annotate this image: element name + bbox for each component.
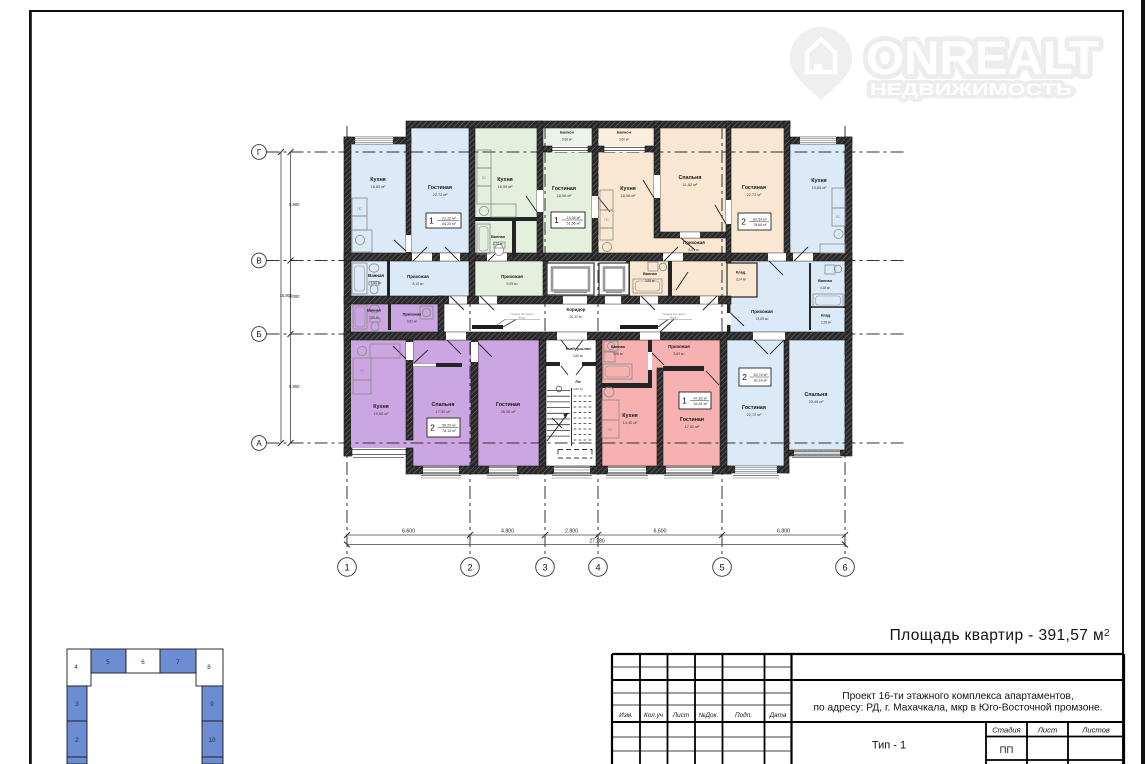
svg-text:13,69 м²: 13,69 м²	[756, 317, 770, 321]
svg-text:Л/к: Л/к	[575, 380, 581, 384]
svg-text:78,15 м²: 78,15 м²	[442, 429, 456, 433]
svg-text:7: 7	[176, 659, 180, 666]
svg-text:по адресу: РД, г. Махачкала, м: по адресу: РД, г. Махачкала, мкр в Юго-В…	[813, 703, 1102, 714]
svg-text:54,25 м²: 54,25 м²	[442, 222, 456, 226]
svg-text:18,83 м²: 18,83 м²	[371, 184, 386, 189]
svg-text:Б: Б	[256, 330, 261, 339]
svg-text:Г: Г	[257, 148, 262, 157]
svg-text:Прихожая: Прихожая	[501, 274, 523, 279]
svg-text:Кухня: Кухня	[373, 404, 388, 410]
svg-text:9,55 м²: 9,55 м²	[506, 282, 518, 286]
svg-text:8,01 м²: 8,01 м²	[688, 248, 700, 252]
svg-text:ПС: ПС	[608, 428, 613, 432]
svg-text:Кухня: Кухня	[370, 177, 385, 183]
svg-text:Листов: Листов	[1081, 726, 1110, 735]
svg-text:60,54 м²: 60,54 м²	[753, 217, 767, 221]
svg-text:Тип - 1: Тип - 1	[872, 740, 906, 752]
svg-text:83,16 м²: 83,16 м²	[754, 379, 768, 383]
svg-text:Подп.: Подп.	[735, 711, 752, 719]
svg-text:1: 1	[344, 562, 349, 572]
svg-text:Гостиная: Гостиная	[742, 405, 766, 411]
svg-text:В: В	[256, 256, 261, 265]
svg-text:26,32 м²: 26,32 м²	[570, 315, 584, 319]
svg-text:5.900: 5.900	[289, 202, 300, 207]
svg-text:Гостиная: Гостиная	[552, 186, 576, 192]
svg-text:3,66 м²: 3,66 м²	[369, 316, 379, 320]
svg-text:6.600: 6.600	[402, 529, 415, 535]
svg-text:2.800: 2.800	[565, 529, 578, 535]
svg-text:Кухня: Кухня	[620, 186, 635, 192]
svg-text:19,65 м²: 19,65 м²	[374, 411, 389, 416]
svg-text:2: 2	[742, 372, 747, 382]
svg-text:Лист: Лист	[1037, 726, 1058, 735]
svg-text:Изм.: Изм.	[619, 712, 633, 719]
svg-text:Спальня: Спальня	[679, 175, 702, 181]
svg-text:14,40 м²: 14,40 м²	[623, 420, 638, 425]
svg-text:6.600: 6.600	[654, 529, 667, 535]
svg-text:18,56 м²: 18,56 м²	[621, 193, 636, 198]
svg-text:3,24 м²: 3,24 м²	[493, 242, 503, 246]
svg-text:2: 2	[75, 737, 79, 744]
svg-text:3,80 м²: 3,80 м²	[573, 354, 583, 358]
svg-text:18,56 м²: 18,56 м²	[557, 193, 572, 198]
svg-text:3: 3	[542, 562, 547, 572]
svg-text:22,72 м²: 22,72 м²	[747, 412, 762, 417]
svg-text:18,56 м²: 18,56 м²	[567, 216, 581, 220]
svg-text:Тамбур-шлюз: Тамбур-шлюз	[565, 347, 591, 351]
svg-text:11,82 м²: 11,82 м²	[683, 182, 698, 187]
svg-text:Проект 16-ти этажного комплекс: Проект 16-ти этажного комплекса апартаме…	[842, 691, 1073, 702]
svg-text:Гостиная: Гостиная	[680, 417, 704, 423]
svg-text:4,84 м²: 4,84 м²	[573, 387, 583, 391]
svg-text:8: 8	[207, 664, 211, 671]
svg-text:Кухня: Кухня	[622, 413, 637, 419]
svg-text:63,78 м²: 63,78 м²	[754, 373, 768, 377]
svg-text:17,92 м²: 17,92 м²	[436, 409, 451, 414]
svg-text:22,72 м²: 22,72 м²	[433, 192, 448, 197]
svg-text:ПС: ПС	[604, 218, 609, 222]
svg-text:Прихожая: Прихожая	[668, 344, 690, 349]
svg-text:Лист: Лист	[672, 712, 690, 719]
svg-text:78,66 м²: 78,66 м²	[753, 223, 767, 227]
svg-text:ПП: ПП	[1000, 745, 1014, 756]
svg-text:Гостиная: Гостиная	[428, 185, 452, 191]
svg-text:Клад.: Клад.	[736, 271, 746, 275]
svg-text:1: 1	[682, 396, 687, 406]
svg-text:5.900: 5.900	[289, 384, 300, 389]
svg-text:5: 5	[106, 659, 110, 666]
svg-text:Прихожая: Прихожая	[403, 313, 422, 317]
svg-text:6.800: 6.800	[777, 529, 790, 535]
svg-text:3,85 м²: 3,85 м²	[645, 279, 655, 283]
svg-text:3: 3	[75, 701, 79, 708]
svg-text:Кухня: Кухня	[811, 178, 826, 184]
svg-text:19,84 м²: 19,84 м²	[812, 185, 827, 190]
svg-text:Ванная: Ванная	[368, 273, 384, 278]
svg-text:А: А	[256, 439, 262, 448]
svg-text:Дата: Дата	[769, 712, 787, 719]
svg-text:Ванная: Ванная	[643, 272, 657, 276]
svg-text:26,98 м²: 26,98 м²	[501, 409, 516, 414]
svg-text:17,82 м²: 17,82 м²	[685, 424, 700, 429]
svg-text:4.000: 4.000	[289, 294, 300, 299]
svg-text:27.280: 27.280	[589, 538, 605, 544]
svg-text:Клад.: Клад.	[821, 314, 831, 318]
svg-text:3,96 м²: 3,96 м²	[613, 352, 623, 356]
svg-text:3,66 м²: 3,66 м²	[370, 281, 382, 285]
svg-text:20,46 м²: 20,46 м²	[809, 399, 824, 404]
svg-text:22,32 м²: 22,32 м²	[442, 216, 456, 220]
svg-text:4,18 м²: 4,18 м²	[820, 286, 830, 290]
svg-text:Прихожая: Прихожая	[407, 274, 429, 279]
svg-text:Спальня: Спальня	[805, 392, 828, 398]
svg-text:4: 4	[74, 664, 78, 671]
svg-text:5: 5	[719, 562, 724, 572]
svg-text:6: 6	[842, 562, 847, 572]
svg-text:1: 1	[429, 216, 434, 226]
svg-text:6: 6	[141, 659, 145, 666]
svg-text:4.800: 4.800	[501, 529, 514, 535]
svg-text:47,82 м²: 47,82 м²	[694, 396, 708, 400]
svg-text:Коридор: Коридор	[567, 307, 586, 312]
svg-text:Кухня: Кухня	[497, 177, 512, 183]
svg-text:16,59 м²: 16,59 м²	[498, 184, 513, 189]
svg-text:4: 4	[595, 562, 600, 572]
svg-text:ПС: ПС	[357, 207, 362, 211]
svg-text:9,82 м²: 9,82 м²	[407, 320, 417, 324]
svg-text:2: 2	[430, 423, 435, 433]
svg-text:Ванная: Ванная	[491, 235, 505, 239]
svg-text:ПС: ПС	[836, 215, 841, 219]
svg-text:Площадь квартир - 391,57 м2: Площадь квартир - 391,57 м2	[890, 627, 1110, 644]
svg-text:Кол.уч: Кол.уч	[644, 712, 664, 719]
svg-text:10: 10	[209, 737, 216, 744]
svg-text:3,60 м²: 3,60 м²	[619, 138, 629, 142]
svg-text:9: 9	[210, 701, 214, 708]
svg-text:Спальня: Спальня	[432, 402, 455, 408]
svg-text:Ванная: Ванная	[611, 345, 625, 349]
svg-text:ПС: ПС	[360, 369, 365, 373]
svg-text:Гостиная: Гостиная	[742, 185, 766, 191]
svg-text:Балкон: Балкон	[617, 131, 631, 135]
svg-text:2: 2	[467, 562, 472, 572]
svg-text:НЕДВИЖИМОСТЬ: НЕДВИЖИМОСТЬ	[870, 81, 1072, 99]
svg-text:Прихожая: Прихожая	[751, 309, 773, 314]
svg-text:56,20 м²: 56,20 м²	[442, 423, 456, 427]
svg-text:Ванная: Ванная	[818, 279, 832, 283]
svg-text:8,69 м²: 8,69 м²	[673, 352, 685, 356]
svg-text:Прихожая: Прихожая	[683, 240, 705, 245]
svg-text:№Док.: №Док.	[699, 712, 719, 719]
svg-text:ONREALT: ONREALT	[866, 31, 1099, 84]
svg-text:2,28 м²: 2,28 м²	[821, 321, 831, 325]
svg-text:22,72 м²: 22,72 м²	[747, 192, 762, 197]
svg-text:ПС: ПС	[482, 176, 487, 180]
svg-text:1: 1	[554, 215, 559, 225]
svg-text:Балкон: Балкон	[560, 131, 574, 135]
svg-text:51,56 м²: 51,56 м²	[567, 222, 581, 226]
svg-text:64,81 м²: 64,81 м²	[694, 402, 708, 406]
svg-text:3,68 м²: 3,68 м²	[562, 138, 572, 142]
svg-text:Воды: Воды	[670, 315, 677, 319]
svg-text:2: 2	[741, 217, 746, 227]
svg-text:Воды: Воды	[518, 315, 525, 319]
svg-text:8,10 м²: 8,10 м²	[412, 282, 424, 286]
svg-text:3,24 м²: 3,24 м²	[736, 278, 746, 282]
svg-text:Ванная: Ванная	[367, 309, 381, 313]
svg-text:Стадия: Стадия	[992, 726, 1020, 735]
svg-text:Гостиная: Гостиная	[496, 402, 520, 408]
